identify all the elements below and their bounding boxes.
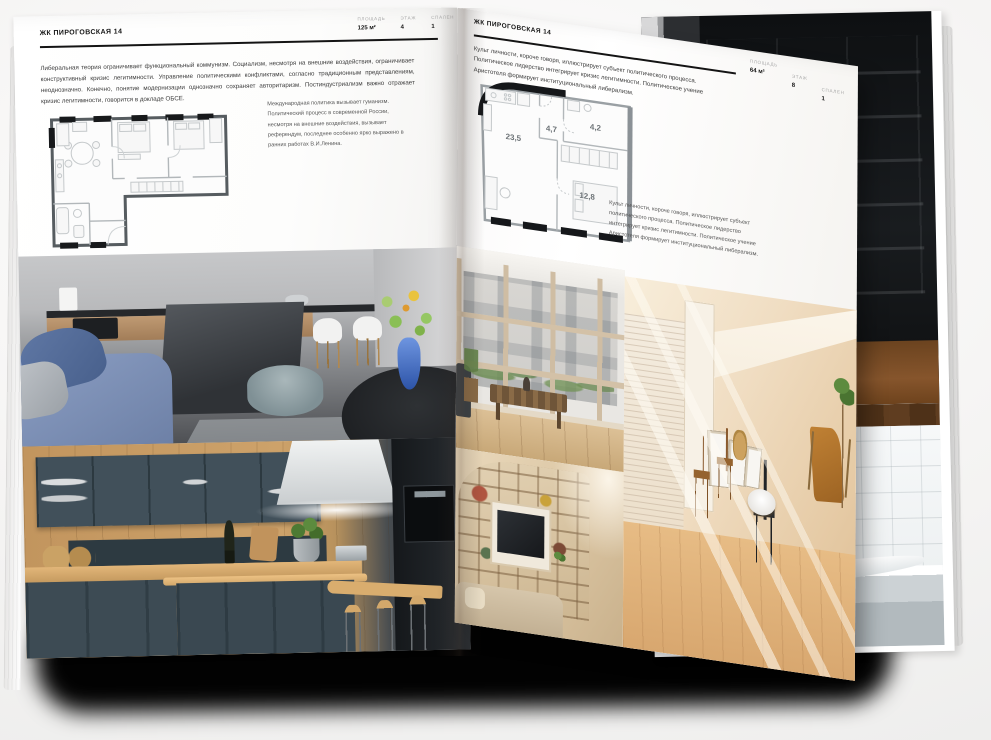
tv-screen	[497, 510, 544, 559]
spice-jars	[42, 545, 96, 567]
page-title: ЖК ПИРОГОВСКАЯ 14	[40, 28, 123, 37]
bar-stool	[343, 605, 364, 652]
stat-value: 1	[822, 96, 845, 105]
stat-area: ПЛОЩАДЬ 64 м²	[750, 59, 778, 78]
right-page: ЖК ПИРОГОВСКАЯ 14 Культ личности, короче…	[455, 8, 858, 681]
sunlight-stripes	[623, 276, 857, 681]
flowers	[376, 278, 444, 346]
stat-label: СПАЛЕН	[822, 87, 845, 95]
pillow	[465, 586, 485, 610]
magazine-mockup-scene: ЖК ПИРОГОВСКАЯ 14 ПЛОЩАДЬ 125 м² ЭТАЖ 4 …	[0, 0, 991, 740]
stat-floor: ЭТАЖ 4	[400, 15, 416, 30]
stat-bedrooms: СПАЛЕН 1	[431, 14, 454, 29]
white-chair	[313, 318, 342, 343]
right-stats: ПЛОЩАДЬ 64 м² ЭТАЖ 8 СПАЛЕН 1	[750, 59, 845, 88]
room-area-bath: 4,2	[590, 122, 602, 133]
page-title: ЖК ПИРОГОВСКАЯ 14	[474, 18, 551, 36]
stat-value: 1	[431, 23, 454, 29]
left-stats: ПЛОЩАДЬ 125 м² ЭТАЖ 4 СПАЛЕН 1	[357, 14, 454, 31]
bar-stool	[374, 600, 395, 651]
photo-beige-room	[623, 276, 857, 681]
stat-label: ПЛОЩАДЬ	[357, 16, 385, 22]
stat-label: СПАЛЕН	[431, 14, 454, 19]
floor-plan-left	[43, 104, 236, 254]
header-rule	[40, 38, 438, 48]
sunlight-glow	[548, 461, 624, 568]
photo-loft-window	[456, 246, 625, 472]
stat-value: 4	[401, 24, 417, 30]
bench-decor	[523, 377, 530, 392]
photo-kitchen-grey	[18, 247, 466, 446]
room-area-hall: 4,7	[546, 124, 558, 135]
steel-pot	[335, 545, 366, 560]
stat-bedrooms: СПАЛЕН 1	[822, 87, 845, 105]
cutting-board	[249, 525, 278, 561]
stat-floor: ЭТАЖ 8	[792, 74, 808, 91]
left-page: ЖК ПИРОГОВСКАЯ 14 ПЛОЩАДЬ 125 м² ЭТАЖ 4 …	[13, 7, 470, 658]
stat-value: 125 м²	[358, 25, 386, 32]
bar-stool	[407, 595, 428, 651]
lower-cabinets	[25, 579, 178, 658]
blue-sofa	[18, 352, 173, 446]
stat-value: 64 м²	[750, 68, 778, 78]
stat-label: ПЛОЩАДЬ	[750, 59, 778, 68]
stat-label: ЭТАЖ	[400, 15, 416, 20]
coffee-machine	[59, 288, 77, 311]
potted-plant	[464, 348, 478, 402]
stat-label: ЭТАЖ	[792, 74, 808, 81]
side-note: Международная политика вызывает гуманизм…	[267, 97, 404, 152]
stat-value: 8	[792, 83, 808, 91]
photo-kitchen-teal	[22, 437, 470, 658]
pouf	[247, 364, 324, 417]
extractor-hood	[275, 439, 396, 505]
stat-area: ПЛОЩАДЬ 125 м²	[357, 16, 385, 32]
metal-bucket	[293, 538, 320, 562]
oven-knobs	[414, 491, 445, 498]
photo-shelves-room	[455, 448, 624, 647]
